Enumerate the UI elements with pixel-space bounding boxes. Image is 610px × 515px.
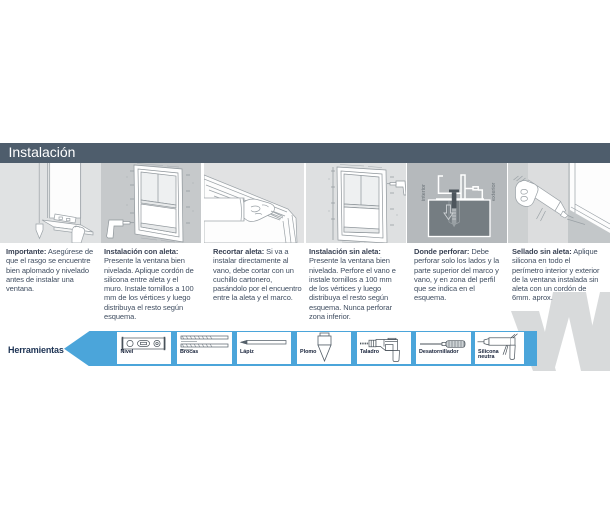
svg-text:exterior: exterior: [491, 182, 497, 201]
svg-text:interior: interior: [421, 184, 427, 201]
